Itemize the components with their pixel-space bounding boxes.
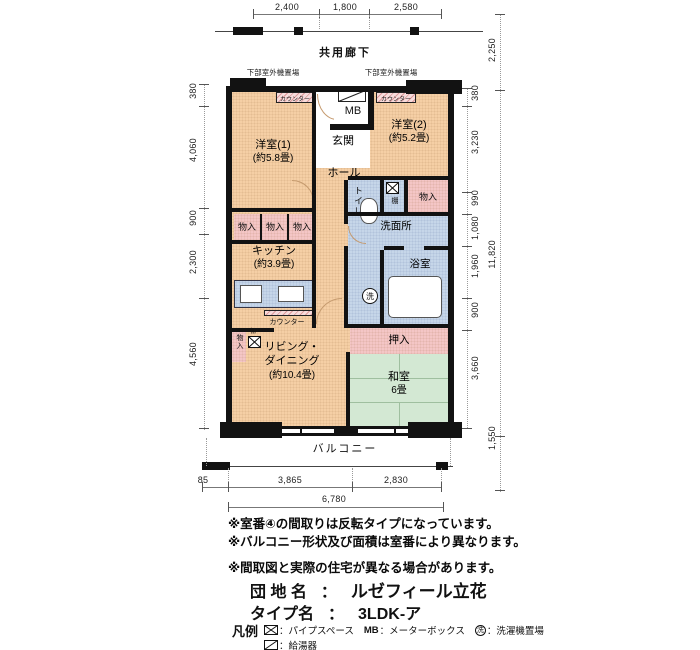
balcony-side-right	[450, 438, 451, 466]
counter-strip-kitchen	[264, 310, 314, 316]
dim-tick	[199, 208, 209, 209]
dim-tick	[253, 9, 254, 19]
estate-name-value: ルゼフィール立花	[351, 577, 487, 602]
note-1: ※室番④の間取りは反転タイプになっています。	[228, 513, 499, 532]
dim-tick	[443, 502, 444, 512]
dim-left-3: 900	[188, 210, 198, 226]
washer-symbol: 洗	[362, 288, 378, 304]
corner-block-bottom-left	[220, 422, 282, 438]
separator: ：	[328, 600, 344, 624]
dim-bottom-total: 6,780	[306, 494, 362, 504]
dim-tick	[441, 482, 442, 492]
room-japanese-name: 和室	[350, 370, 448, 384]
dim-left-5: 4,560	[188, 342, 198, 366]
type-name-value: 3LDK-ア	[358, 600, 421, 624]
wall	[344, 180, 348, 224]
corridor-wall-segment	[294, 27, 303, 35]
closet-label-2: 物入	[262, 220, 288, 233]
kitchen-stove	[278, 286, 304, 302]
corner-block-top-left	[230, 78, 266, 90]
dim-bottom-3: 2,830	[368, 475, 424, 485]
dimension-line-right-outer	[500, 14, 501, 492]
corridor-wall-segment	[233, 27, 263, 35]
floor-plan: MB 玄関 カウンター カウンター 洋室(1) (約5.8畳) 洋室(2) (約…	[210, 76, 462, 476]
kitchen-size: (約3.9畳)	[234, 258, 314, 271]
dim-bottom-1: 85	[190, 475, 216, 485]
wall	[384, 246, 404, 250]
pipe-space-symbol-toilet	[386, 182, 399, 194]
legend-heading: 凡例	[232, 621, 258, 640]
dim-top-3: 2,580	[381, 2, 431, 12]
wall	[348, 176, 454, 180]
room-west1-size: (約5.8畳)	[232, 152, 314, 165]
wall	[380, 250, 384, 328]
estate-name-row: 団 地 名 ： ルゼフィール立花	[250, 577, 487, 602]
oshiire-label: 押入	[350, 334, 448, 348]
corridor-label: 共用廊下	[300, 44, 390, 60]
living-size: (約10.4畳)	[240, 369, 344, 382]
dim-right-1: 380	[470, 85, 480, 101]
extension-line	[369, 15, 370, 29]
dim-tick	[199, 234, 209, 235]
dim-tick	[462, 214, 472, 215]
dim-tick	[462, 330, 472, 331]
room-japanese-size: 6畳	[350, 384, 448, 397]
closet-right-label: 物入	[408, 190, 448, 203]
closet-label-1: 物入	[234, 220, 260, 233]
dim-tick	[441, 9, 442, 19]
legend-row-2: ：給湯器	[264, 638, 317, 650]
wall	[404, 180, 408, 216]
dimension-line	[228, 507, 444, 508]
dim-tick	[199, 428, 209, 429]
wall	[380, 180, 384, 216]
meter-box-symbol: MB	[364, 625, 379, 636]
dim-tick	[228, 482, 229, 492]
living-line2: ダイニング	[240, 354, 344, 368]
shelf-label-toilet: 棚	[389, 197, 399, 205]
legend-boiler: ：給湯器	[264, 638, 317, 650]
tatami-line	[399, 402, 400, 426]
dim-bottom-2: 3,865	[262, 475, 318, 485]
room-west2-label: 洋室(2) (約5.2畳)	[372, 118, 446, 145]
dim-tick	[352, 482, 353, 492]
living-label: リビング・ ダイニング (約10.4畳)	[240, 340, 344, 382]
type-name-label: タイプ名	[250, 600, 314, 624]
dim-tick	[495, 90, 505, 91]
room-west2-size: (約5.2畳)	[372, 132, 446, 145]
dimension-line-right-inner	[467, 88, 468, 428]
living-line1: リビング・	[240, 340, 344, 354]
pipe-space-icon	[264, 625, 278, 635]
mb-label: MB	[336, 105, 370, 117]
legend-boiler-text: ：給湯器	[279, 638, 317, 650]
counter-label-west2: カウンター	[376, 94, 416, 103]
dim-top-2: 1,800	[320, 2, 370, 12]
estate-name-label: 団 地 名	[250, 578, 307, 602]
dim-corridor-depth: 2,250	[487, 38, 497, 62]
dim-left-4: 2,300	[188, 250, 198, 274]
dim-top-1: 2,400	[262, 2, 312, 12]
window-sash	[300, 428, 302, 434]
dim-tick	[462, 428, 472, 429]
dim-tick	[495, 490, 505, 491]
kitchen-label: キッチン (約3.9畳)	[234, 244, 314, 271]
corridor-wall-segment	[410, 27, 419, 35]
washer-icon: 洗	[475, 625, 486, 636]
wall	[344, 246, 348, 328]
legend-meter-box-text: ：メーターボックス	[380, 623, 465, 637]
balcony-side-left	[206, 438, 207, 466]
dim-left-2: 4,060	[188, 138, 198, 162]
wall	[312, 210, 316, 328]
dim-right-7: 3,660	[470, 356, 480, 380]
legend-meter-box: MB ：メーターボックス	[364, 623, 465, 637]
counter-label-kitchen: カウンター	[258, 317, 316, 327]
separator: ：	[321, 578, 337, 602]
legend-washer-text: ：洗濯機置場	[487, 623, 544, 637]
legend-pipe-space-text: ：パイプスペース	[279, 623, 354, 637]
wall	[312, 92, 316, 212]
note-3: ※間取図と実際の住宅が異なる場合があります。	[228, 557, 501, 576]
bathroom-label: 浴室	[398, 258, 442, 272]
dim-tick	[199, 84, 209, 85]
legend-pipe-space: ：パイプスペース	[264, 623, 354, 637]
room-japanese-label: 和室 6畳	[350, 370, 448, 397]
wall	[346, 352, 350, 426]
floor-plan-sheet: 2,400 1,800 2,580 共用廊下 下部室外機置場 下部室外機置場 3…	[0, 0, 700, 650]
counter-label-west1: カウンター	[276, 94, 314, 103]
water-heater-icon	[264, 640, 278, 650]
dim-tick	[462, 106, 472, 107]
extension-line	[319, 15, 320, 29]
room-west1-name: 洋室(1)	[232, 138, 314, 152]
type-name-row: タイプ名 ： 3LDK-ア	[250, 600, 421, 624]
dimension-line	[253, 14, 441, 15]
wall	[232, 328, 274, 332]
dim-total-height: 11,820	[487, 240, 497, 269]
wall	[232, 240, 316, 244]
dim-tick	[462, 298, 472, 299]
corner-block-top-right	[406, 80, 462, 94]
bathtub	[388, 276, 442, 318]
legend-row-1: ：パイプスペース MB ：メーターボックス 洗 ：洗濯機置場	[264, 623, 544, 637]
dimension-line-left	[204, 84, 205, 430]
corner-block-bottom-right	[408, 422, 462, 438]
dim-tick	[462, 246, 472, 247]
entrance-label: 玄関	[318, 134, 368, 148]
dim-tick	[199, 106, 209, 107]
balcony-wall-segment	[436, 462, 448, 470]
outer-wall-left	[226, 86, 232, 432]
kitchen-sink	[240, 285, 262, 303]
balcony-edge	[205, 466, 453, 467]
dim-left-1: 380	[188, 83, 198, 99]
dim-right-3: 990	[470, 190, 480, 206]
dim-tick	[199, 298, 209, 299]
dim-right-4: 1,080	[470, 216, 480, 240]
wall	[330, 124, 374, 130]
outer-wall-right	[448, 92, 454, 432]
kitchen-name: キッチン	[234, 244, 314, 258]
dim-right-5: 1,960	[470, 254, 480, 278]
note-2: ※バルコニー形状及び面積は室番により異なります。	[228, 531, 526, 550]
dim-right-6: 900	[470, 302, 480, 318]
balcony-label: バルコニー	[300, 440, 390, 456]
washroom-label: 洗面所	[364, 220, 428, 234]
window-sash	[394, 428, 396, 434]
wall	[348, 212, 384, 216]
dim-balcony-depth: 1,550	[487, 426, 497, 450]
dim-tick	[495, 14, 505, 15]
room-west1-label: 洋室(1) (約5.8畳)	[232, 138, 314, 165]
wall	[232, 208, 316, 212]
wall	[348, 324, 454, 328]
dim-right-2: 3,230	[470, 130, 480, 154]
legend-washer: 洗 ：洗濯機置場	[475, 623, 544, 637]
dimension-line	[202, 487, 441, 488]
dim-tick	[228, 502, 229, 512]
room-west2-name: 洋室(2)	[372, 118, 446, 132]
wall	[380, 212, 454, 216]
